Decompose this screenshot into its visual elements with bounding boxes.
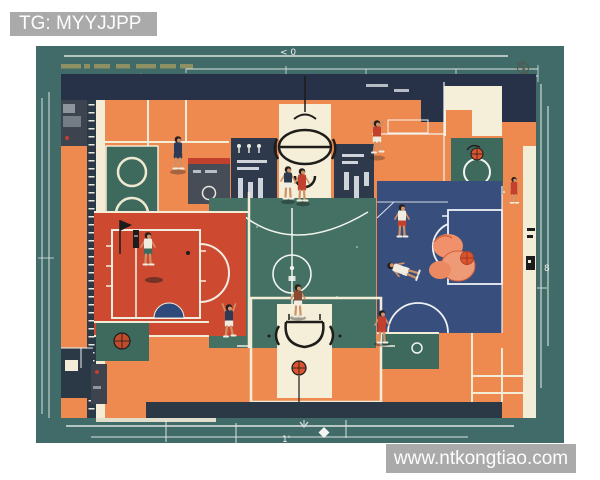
top-left-gray-block: [61, 100, 87, 146]
person-circle-panel: [106, 146, 158, 214]
basketball-icon: [114, 333, 130, 349]
dimension-label-bottom: 1': [282, 435, 290, 443]
bottom-navy-strip: [146, 402, 502, 418]
court-blueprint-illustration: < 0 8 1': [36, 46, 564, 443]
right-cream-strip: [523, 146, 536, 418]
dimension-label-top: < 0: [280, 48, 296, 58]
annotation-pseudo-text: [61, 64, 193, 69]
image-canvas: TG: MYYJJPP: [0, 0, 600, 480]
basketball-icon: [292, 361, 306, 375]
watermark-top-left: TG: MYYJJPP: [10, 12, 157, 36]
basketball-icon: [471, 148, 483, 160]
watermark-bottom-right: www.ntkongtiao.com: [386, 444, 576, 473]
bottom-cream-edge: [96, 418, 216, 422]
scoreboard-panel-small: [188, 158, 230, 204]
dimension-label-right: 8: [544, 264, 550, 274]
court: [61, 74, 536, 422]
